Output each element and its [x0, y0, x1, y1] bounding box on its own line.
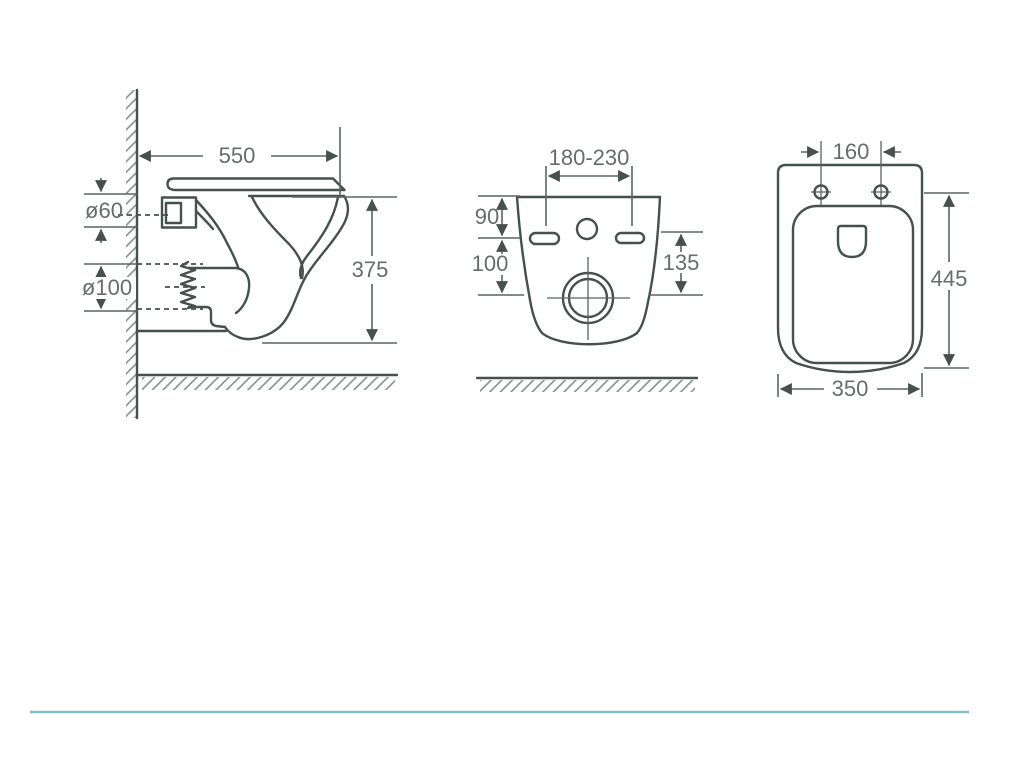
dim-350: 350	[778, 373, 922, 401]
side-view: 550 ø60 ø100 375	[79, 90, 397, 418]
side-ground-hatch	[142, 377, 395, 390]
bowl-front-curve	[225, 196, 348, 339]
technical-drawing-page: 550 ø60 ø100 375	[0, 0, 1024, 768]
inlet-spud	[166, 203, 181, 223]
top-view: 160 445 350	[778, 139, 969, 401]
flush-channel-outer	[196, 200, 238, 267]
seat-lid	[168, 179, 345, 191]
outlet-corrugation	[181, 262, 195, 308]
left-bolt-hole	[811, 141, 831, 205]
front-ground-hatch	[480, 380, 695, 392]
front-view: 180-230 90 100 135	[466, 145, 704, 392]
water-inlet-hole	[577, 219, 597, 239]
bowl-inner-left	[252, 197, 303, 278]
dim-180-230: 180-230	[546, 145, 632, 226]
dim-375: 375	[262, 197, 397, 343]
side-height-label: 375	[352, 257, 389, 282]
left-mounting-slot	[530, 233, 559, 244]
dim-160: 160	[801, 139, 901, 164]
bowl-inner-right	[300, 197, 338, 278]
toilet-side-outline	[137, 179, 348, 340]
holes-to-drain-label: 100	[472, 251, 509, 276]
flush-water-area	[838, 226, 866, 257]
trap-bottom	[189, 307, 225, 327]
side-width-label: 550	[219, 143, 256, 168]
top-to-holes-label: 90	[475, 204, 499, 229]
toilet-dimension-diagram: 550 ø60 ø100 375	[0, 0, 1024, 768]
right-mounting-slot	[616, 233, 644, 243]
bolt-spacing-label: 180-230	[549, 145, 630, 170]
side-span-label: 135	[663, 250, 700, 275]
dim-100: 100	[466, 241, 524, 296]
dim-90: 90	[475, 196, 520, 238]
toilet-top-outline	[778, 165, 922, 372]
top-depth-label: 445	[931, 266, 968, 291]
top-width-label: 350	[832, 376, 869, 401]
flush-channel-inner	[196, 211, 213, 229]
outlet-diameter-label: ø100	[82, 275, 132, 300]
wall-hatch	[126, 90, 137, 418]
top-bolt-spacing-label: 160	[833, 139, 870, 164]
dim-445: 445	[924, 193, 969, 368]
right-bolt-hole	[871, 141, 891, 205]
seat-opening-outline	[793, 206, 913, 363]
inlet-diameter-label: ø60	[85, 198, 123, 223]
